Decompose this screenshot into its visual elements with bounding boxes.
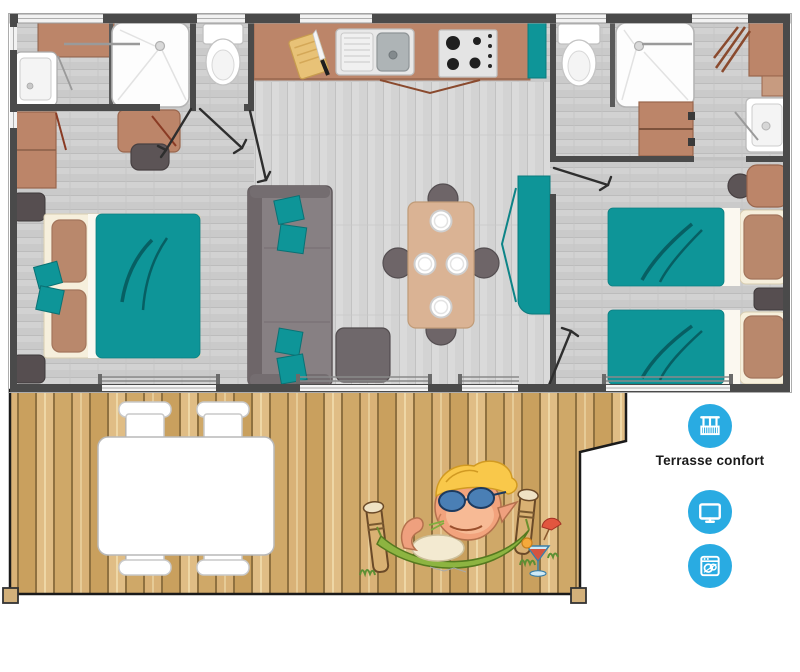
cushion	[274, 196, 304, 225]
deck-foot	[571, 588, 586, 603]
drawer-cabinet	[639, 102, 695, 156]
balcony-icon	[688, 404, 732, 448]
legend: Terrasse confort	[650, 398, 770, 588]
nightstand	[754, 288, 788, 310]
toilet	[203, 24, 243, 85]
deck-foot	[3, 588, 18, 603]
terrace-table	[98, 437, 274, 555]
tv-icon	[688, 490, 732, 534]
single-bed-top	[608, 208, 786, 286]
bathroom-cabinet	[38, 19, 114, 57]
legend-item-tv	[688, 490, 732, 534]
terrace-chair	[197, 402, 249, 439]
pillow	[744, 215, 784, 279]
kitchen-sink	[336, 29, 414, 75]
sofa	[248, 186, 332, 386]
pillow	[744, 316, 784, 378]
cushion	[277, 224, 306, 253]
duvet	[96, 214, 200, 358]
nightstand	[13, 193, 45, 221]
double-bed	[34, 214, 200, 358]
floor-plan-page: Terrasse confort	[0, 0, 800, 672]
partition	[610, 19, 615, 107]
cushion	[275, 328, 303, 356]
tall-unit	[528, 20, 546, 78]
legend-label: Terrasse confort	[656, 453, 765, 468]
stove	[439, 30, 497, 77]
sliding-door	[694, 157, 746, 161]
legend-item-dishwasher	[688, 544, 732, 588]
ottoman	[336, 328, 390, 382]
legend-item-terrasse: Terrasse confort	[656, 404, 765, 468]
cushion	[36, 286, 64, 314]
nightstand	[13, 355, 45, 383]
washbasin	[15, 52, 57, 106]
terrace-chair	[119, 402, 171, 439]
wc-room	[203, 24, 243, 85]
dishwasher-icon	[688, 544, 732, 588]
corner-desk	[747, 165, 788, 207]
shower	[616, 23, 694, 107]
single-bed-bottom	[608, 310, 786, 384]
cushion	[277, 354, 307, 384]
vanity-washbasin	[746, 98, 788, 152]
